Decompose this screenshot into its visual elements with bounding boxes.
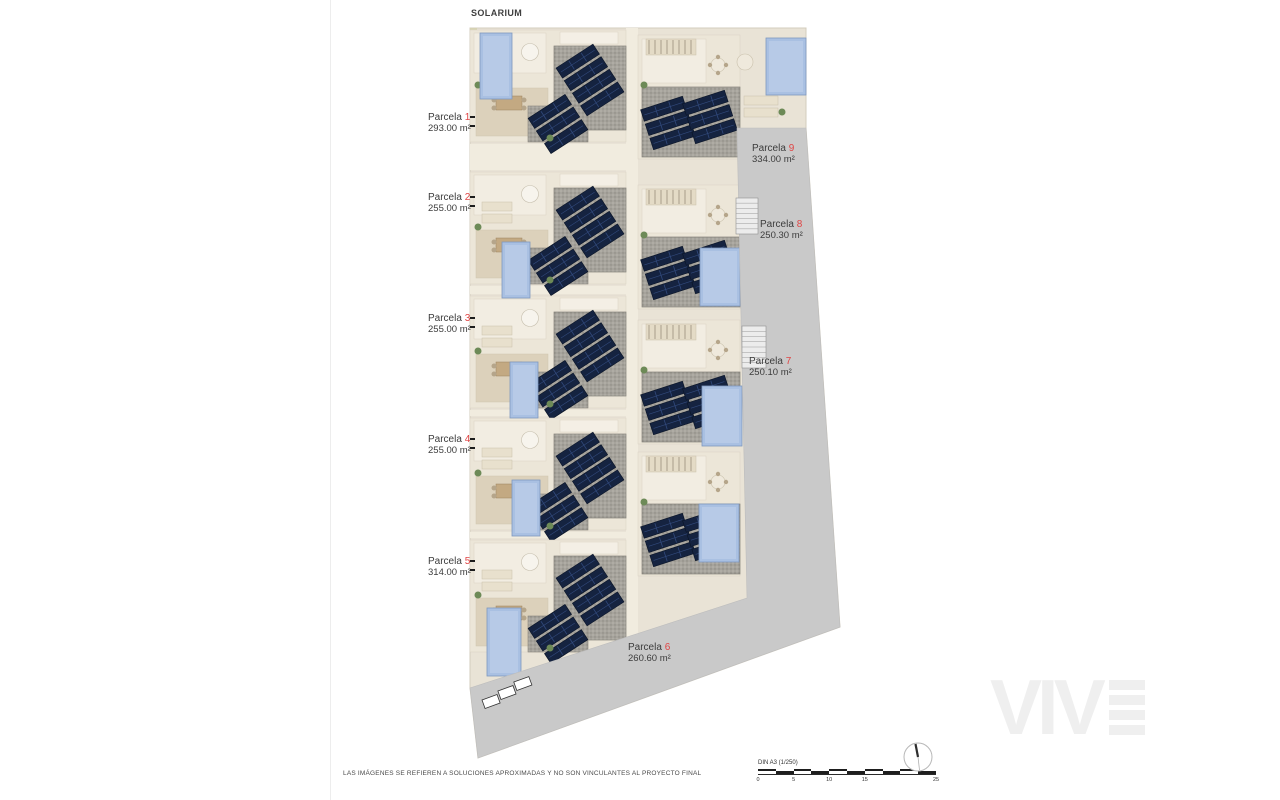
scale-bar-segment bbox=[847, 771, 865, 773]
watermark-bar bbox=[1109, 725, 1145, 735]
site-plan-drawing bbox=[330, 0, 950, 800]
watermark-bar bbox=[1109, 695, 1145, 705]
scale-bar-segment bbox=[794, 769, 812, 771]
disclaimer-text: LAS IMÁGENES SE REFIEREN A SOLUCIONES AP… bbox=[343, 770, 701, 777]
drawing-sheet: SOLARIUM Parcela 1293.00 m²Parcela 2255.… bbox=[0, 0, 1280, 800]
site-plan bbox=[330, 0, 950, 800]
scale-bar-segment bbox=[865, 769, 883, 771]
scale-bar-segment bbox=[758, 769, 776, 771]
watermark-text: VIV bbox=[990, 672, 1101, 742]
scale-tick: 0 bbox=[756, 777, 759, 783]
watermark-bar bbox=[1109, 710, 1145, 720]
scale-tick: 10 bbox=[826, 777, 832, 783]
north-arrow-icon bbox=[896, 738, 940, 778]
scale-bar-segment bbox=[811, 771, 829, 773]
watermark-bar bbox=[1109, 680, 1145, 690]
scale-tick: 25 bbox=[933, 777, 939, 783]
scale-bar-segment bbox=[776, 771, 794, 773]
watermark-logo: VIV bbox=[990, 672, 1145, 742]
scale-tick: 15 bbox=[862, 777, 868, 783]
scale-format-label: DIN A3 (1/250) bbox=[758, 760, 798, 766]
scale-bar-segment bbox=[829, 769, 847, 771]
watermark-bars bbox=[1109, 680, 1145, 735]
scale-tick: 5 bbox=[792, 777, 795, 783]
